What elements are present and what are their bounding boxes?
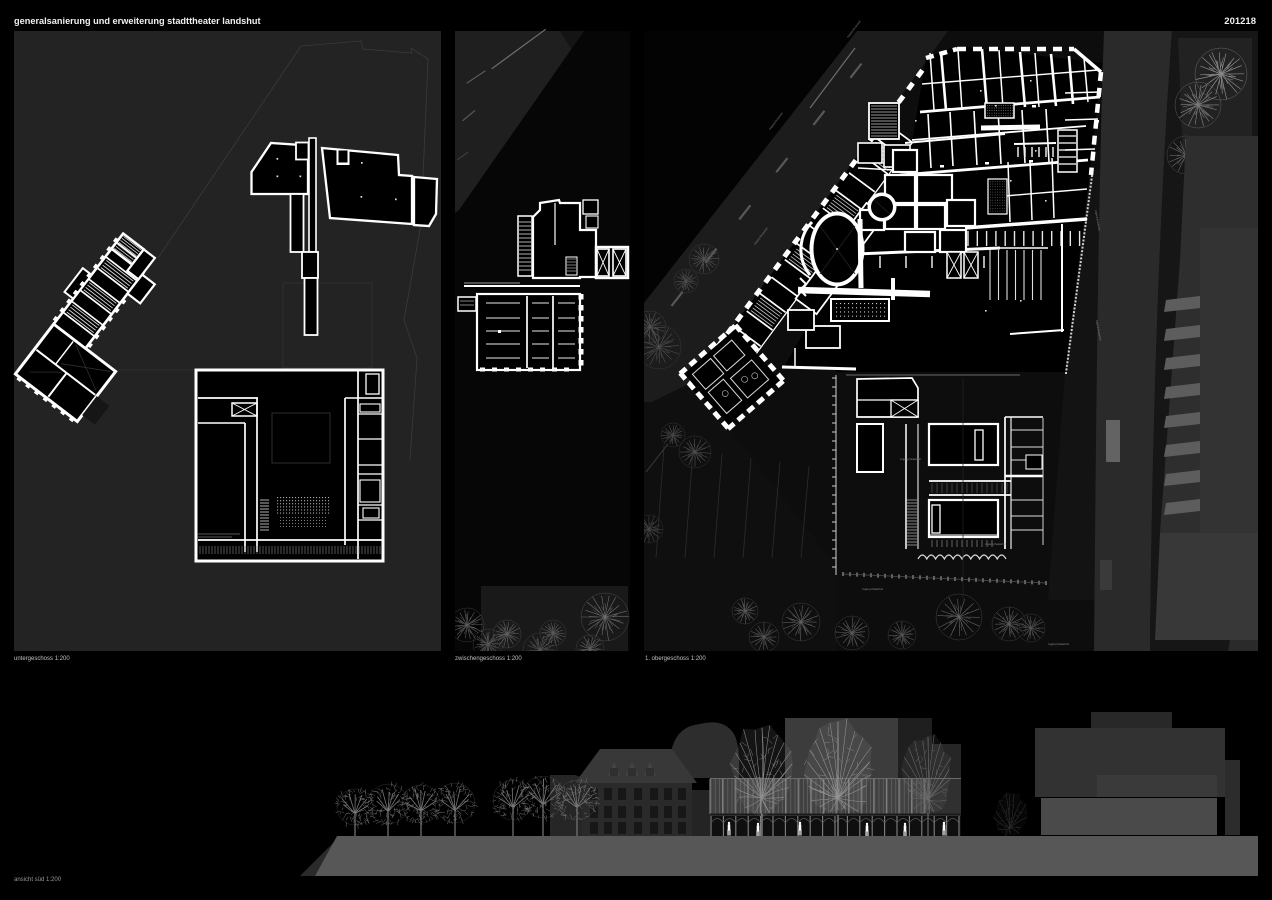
svg-text:1. obergeschoss 1:200: 1. obergeschoss 1:200 <box>645 656 706 662</box>
svg-text:zwischengeschoss 1:200: zwischengeschoss 1:200 <box>455 656 522 662</box>
svg-text:untergeschoss 1:200: untergeschoss 1:200 <box>14 656 70 662</box>
svg-text:zugang theaterhof: zugang theaterhof <box>900 457 921 461</box>
svg-text:zugang theaterhof: zugang theaterhof <box>1048 642 1069 646</box>
svg-text:ansicht süd 1:200: ansicht süd 1:200 <box>14 877 62 883</box>
svg-text:generalsanierung und erweiteru: generalsanierung und erweiterung stadtth… <box>14 16 261 26</box>
svg-text:zugang theaterhof: zugang theaterhof <box>985 542 1006 546</box>
svg-text:zugang theaterhof: zugang theaterhof <box>862 587 883 591</box>
svg-text:201218: 201218 <box>1224 16 1256 27</box>
